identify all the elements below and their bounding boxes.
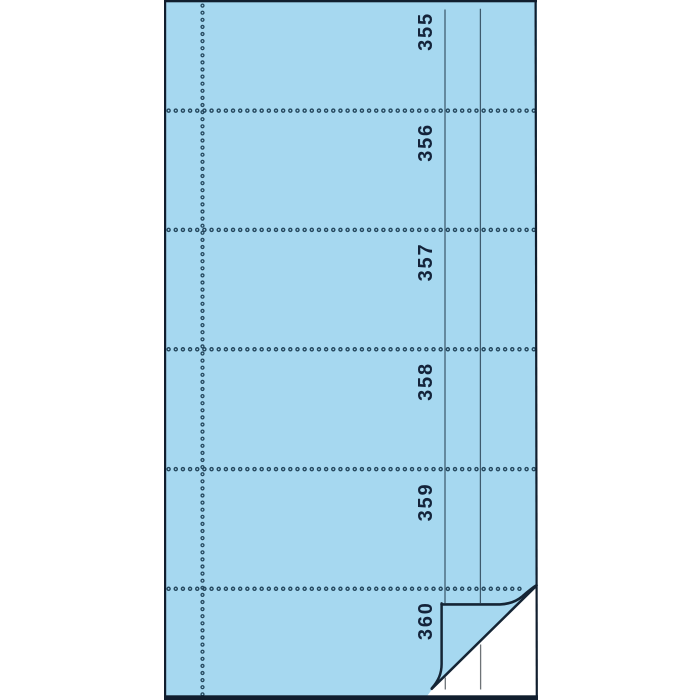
svg-text:360: 360 bbox=[415, 601, 437, 640]
svg-text:359: 359 bbox=[415, 483, 437, 522]
svg-text:355: 355 bbox=[415, 12, 437, 51]
svg-text:358: 358 bbox=[415, 362, 437, 401]
svg-text:357: 357 bbox=[415, 243, 437, 282]
svg-text:356: 356 bbox=[415, 123, 437, 162]
